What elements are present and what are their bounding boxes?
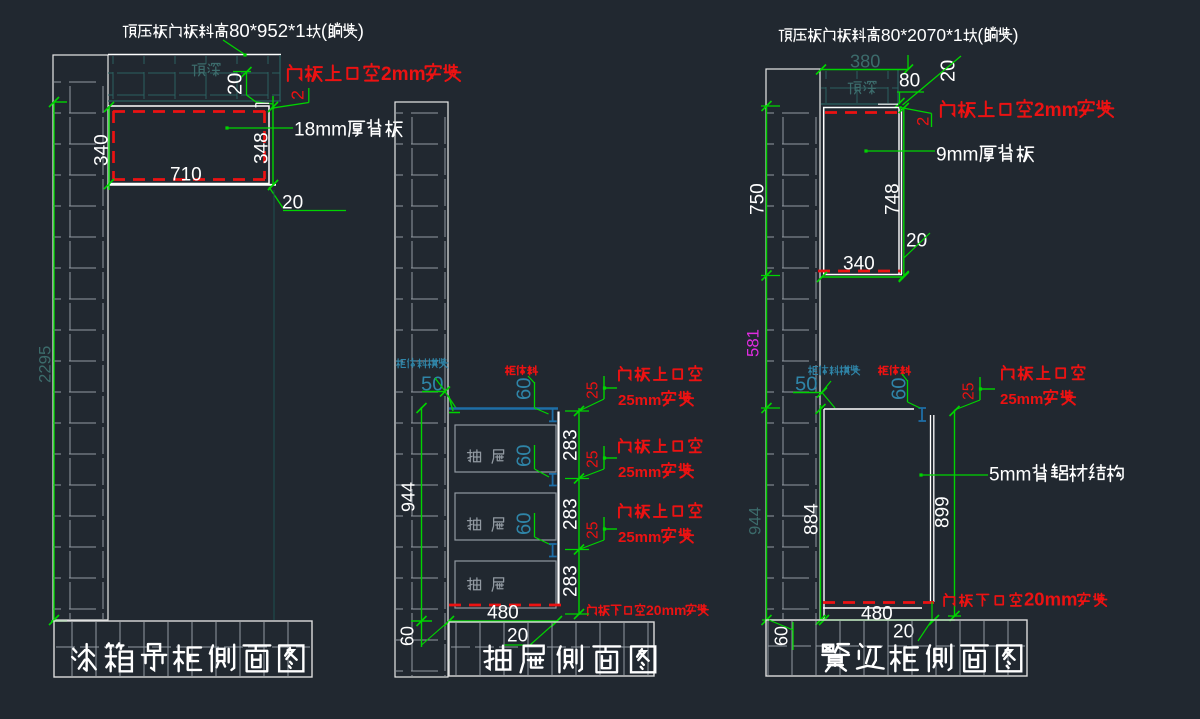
svg-text:20: 20 bbox=[937, 60, 959, 82]
svg-text:25: 25 bbox=[585, 521, 602, 539]
svg-text:2mm: 2mm bbox=[381, 64, 426, 85]
svg-text:2295: 2295 bbox=[36, 346, 55, 383]
svg-text:348: 348 bbox=[251, 132, 272, 164]
svg-text:20mm: 20mm bbox=[646, 602, 686, 618]
svg-text:340: 340 bbox=[843, 253, 875, 274]
svg-text:25mm: 25mm bbox=[618, 529, 661, 546]
svg-text:380: 380 bbox=[850, 52, 880, 72]
svg-text:(: ( bbox=[321, 20, 328, 41]
svg-text:80*952*1: 80*952*1 bbox=[229, 20, 306, 41]
svg-text:710: 710 bbox=[170, 164, 202, 185]
svg-text:283: 283 bbox=[560, 498, 581, 530]
svg-text:5mm: 5mm bbox=[989, 465, 1031, 486]
svg-text:899: 899 bbox=[932, 496, 953, 528]
svg-text:884: 884 bbox=[801, 503, 822, 535]
svg-text:60: 60 bbox=[514, 445, 536, 467]
svg-text:581: 581 bbox=[744, 329, 763, 357]
svg-text:60: 60 bbox=[514, 513, 536, 535]
svg-text:80: 80 bbox=[899, 70, 920, 91]
svg-text:60: 60 bbox=[772, 626, 792, 646]
svg-text:20: 20 bbox=[507, 625, 528, 646]
svg-text:25: 25 bbox=[585, 381, 602, 399]
svg-text:340: 340 bbox=[91, 134, 112, 166]
svg-text:18mm: 18mm bbox=[294, 120, 347, 141]
svg-text:750: 750 bbox=[747, 183, 768, 215]
svg-text:20: 20 bbox=[906, 230, 927, 251]
svg-text:944: 944 bbox=[746, 507, 765, 535]
svg-text:25mm: 25mm bbox=[1000, 391, 1043, 408]
svg-text:9mm: 9mm bbox=[936, 145, 978, 166]
svg-text:748: 748 bbox=[882, 183, 903, 215]
svg-text:25: 25 bbox=[585, 450, 602, 468]
svg-text:25mm: 25mm bbox=[618, 392, 661, 409]
svg-text:): ) bbox=[358, 20, 364, 41]
svg-text:20mm: 20mm bbox=[1024, 589, 1077, 610]
svg-text:25mm: 25mm bbox=[618, 464, 661, 481]
svg-text:20: 20 bbox=[282, 192, 303, 213]
svg-text:480: 480 bbox=[487, 602, 519, 623]
svg-text:20: 20 bbox=[893, 621, 914, 642]
svg-text:(: ( bbox=[977, 25, 983, 45]
svg-text:283: 283 bbox=[560, 565, 581, 597]
svg-text:283: 283 bbox=[560, 429, 581, 461]
svg-text:): ) bbox=[1013, 25, 1019, 45]
svg-text:2: 2 bbox=[287, 90, 307, 100]
svg-text:80*2070*1: 80*2070*1 bbox=[881, 25, 963, 45]
svg-text:25: 25 bbox=[961, 382, 978, 400]
svg-text:2mm: 2mm bbox=[1034, 100, 1079, 121]
svg-text:60: 60 bbox=[398, 626, 418, 646]
svg-text:2: 2 bbox=[914, 117, 933, 126]
svg-text:944: 944 bbox=[399, 482, 419, 512]
